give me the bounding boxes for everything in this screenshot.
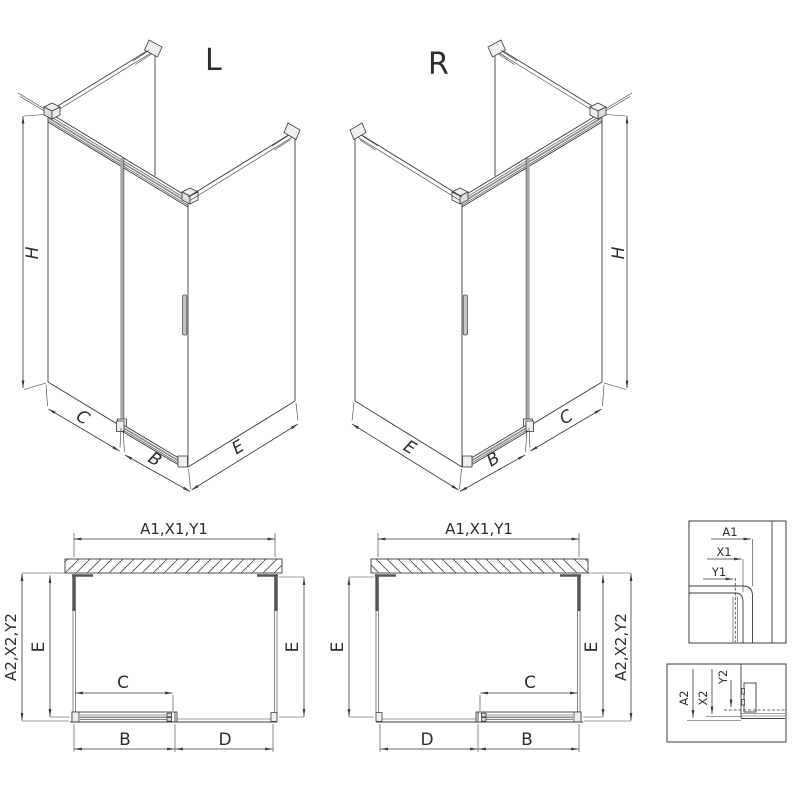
plan-l-dim-left-inner: E [29, 642, 49, 653]
plan-l-dim-left-outer: A2,X2,Y2 [2, 613, 20, 681]
plan-r-dim-bottom-left: D [420, 730, 433, 750]
dim-label-b-r: B [483, 448, 503, 471]
plan-r-dim-top: A1,X1,Y1 [445, 520, 513, 538]
detail-bottom-rail: A2 X2 Y2 [667, 664, 786, 742]
plan-r-dim-left: E [328, 642, 348, 653]
plan-l-dim-top: A1,X1,Y1 [140, 520, 208, 538]
technical-drawing-page: L H C B E R H C B E A1,X1,Y1 A2,X2,Y2 E … [0, 0, 800, 800]
view-title-r: R [428, 47, 449, 82]
plan-view-left: A1,X1,Y1 A2,X2,Y2 E E C B D [2, 520, 304, 752]
detail-wall-profile: A1 X1 Y1 [689, 521, 786, 643]
detail2-label-y2: Y2 [716, 670, 730, 685]
plan-r-dim-opening: C [524, 673, 536, 693]
dim-label-e-l: E [229, 436, 249, 459]
plan-l-dim-opening: C [117, 673, 129, 693]
plan-r-dim-right-outer: A2,X2,Y2 [612, 613, 630, 681]
plan-r-dim-right-inner: E [582, 642, 602, 653]
plan-r-dim-bottom-right: B [521, 730, 533, 750]
dim-label-h-l: H [23, 246, 43, 259]
plan-view-right: A1,X1,Y1 E E A2,X2,Y2 C D B [328, 520, 631, 752]
iso-geometry-left [18, 40, 300, 492]
detail1-label-x1: X1 [716, 545, 731, 559]
view-title-l: L [205, 43, 222, 78]
iso-view-right: R H C B E [350, 40, 632, 492]
plan-l-dim-bottom-right: D [218, 730, 231, 750]
plan-l-dim-right: E [283, 642, 303, 653]
detail2-label-a2: A2 [677, 690, 691, 705]
detail1-label-y1: Y1 [711, 565, 726, 579]
detail1-label-a1: A1 [722, 525, 737, 539]
dim-label-h-r: H [609, 246, 629, 259]
dim-label-c-l: C [72, 406, 93, 429]
detail2-label-x2: X2 [696, 690, 710, 705]
plan-l-dim-bottom-left: B [119, 730, 131, 750]
shower-enclosure-diagram: L H C B E R H C B E A1,X1,Y1 A2,X2,Y2 E … [0, 0, 800, 800]
iso-view-left: L H C B E [18, 40, 300, 492]
iso-geometry-right [350, 40, 632, 492]
plan-geometry-left [22, 533, 304, 752]
